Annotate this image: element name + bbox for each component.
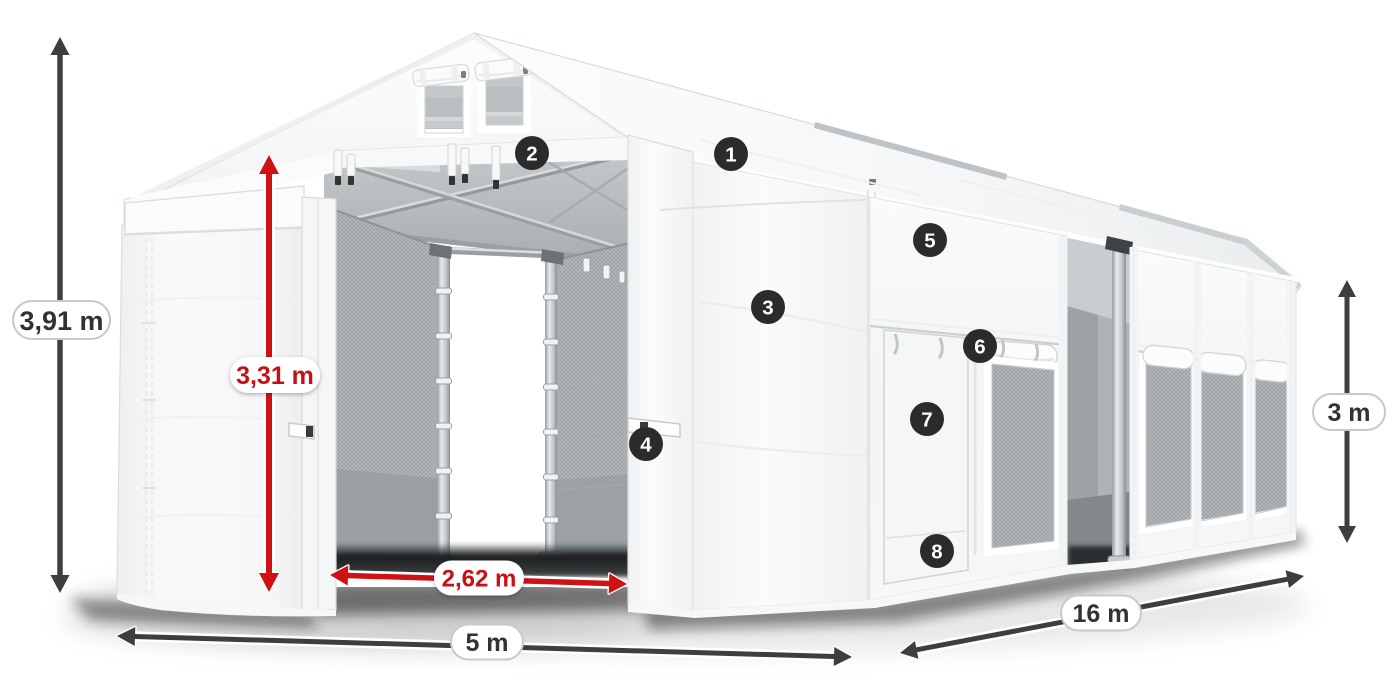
svg-text:7: 7 xyxy=(921,409,932,432)
svg-text:1: 1 xyxy=(725,144,736,167)
svg-text:2,62 m: 2,62 m xyxy=(442,566,517,593)
svg-text:16 m: 16 m xyxy=(1073,600,1130,628)
svg-text:3 m: 3 m xyxy=(1327,399,1370,427)
svg-text:3,91 m: 3,91 m xyxy=(19,306,103,336)
svg-text:5: 5 xyxy=(924,230,935,253)
svg-text:4: 4 xyxy=(640,434,652,457)
svg-text:2: 2 xyxy=(526,143,537,166)
svg-text:5 m: 5 m xyxy=(465,629,508,657)
svg-text:6: 6 xyxy=(974,336,985,359)
svg-text:3,31 m: 3,31 m xyxy=(236,362,314,390)
svg-text:8: 8 xyxy=(931,541,942,564)
svg-text:3: 3 xyxy=(762,297,773,320)
